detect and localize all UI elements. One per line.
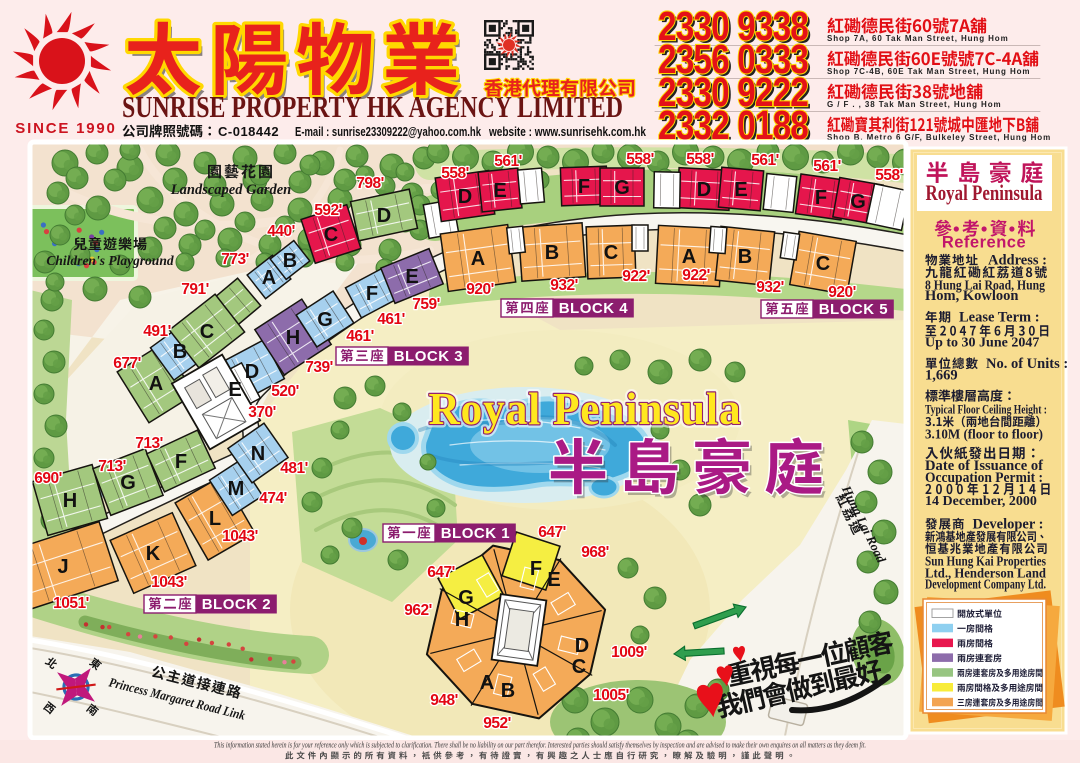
svg-text:K: K <box>146 543 161 565</box>
svg-text:D: D <box>575 635 589 657</box>
svg-text:BLOCK 3: BLOCK 3 <box>394 348 463 365</box>
svg-text:Shop 7C-4B, 60E Tak Man Street: Shop 7C-4B, 60E Tak Man Street, Hung Hom <box>827 67 1030 76</box>
svg-text:D: D <box>697 179 711 201</box>
svg-text:B: B <box>173 341 187 363</box>
svg-text:1,669: 1,669 <box>925 368 958 384</box>
svg-text:Landscaped Garden: Landscaped Garden <box>170 182 291 198</box>
svg-text:474': 474' <box>259 490 287 507</box>
svg-text:Developer :: Developer : <box>973 517 1044 533</box>
svg-text:922': 922' <box>622 268 650 285</box>
svg-text:647': 647' <box>427 564 455 581</box>
svg-text:647': 647' <box>538 524 566 541</box>
svg-text:932': 932' <box>756 279 784 296</box>
svg-text:D: D <box>377 205 391 227</box>
svg-text:G: G <box>458 587 474 609</box>
svg-text:SINCE 1990: SINCE 1990 <box>15 120 116 137</box>
svg-text:A: A <box>480 672 494 694</box>
svg-text:791': 791' <box>181 281 209 298</box>
svg-text:948': 948' <box>430 692 458 709</box>
svg-text:713': 713' <box>98 458 126 475</box>
svg-text:C: C <box>200 321 214 343</box>
svg-text:F: F <box>530 558 542 580</box>
svg-text:461': 461' <box>346 328 374 345</box>
svg-text:440': 440' <box>267 223 295 240</box>
svg-text:G: G <box>850 191 866 213</box>
svg-text:Typical Floor Ceiling Height :: Typical Floor Ceiling Height : <box>925 403 1047 417</box>
svg-text:1005': 1005' <box>593 687 629 704</box>
svg-text:952': 952' <box>483 715 511 732</box>
svg-text:E: E <box>228 379 241 401</box>
svg-text:739': 739' <box>305 359 333 376</box>
svg-text:C: C <box>604 242 618 264</box>
svg-text:F: F <box>366 283 378 305</box>
svg-text:BLOCK 2: BLOCK 2 <box>202 596 271 613</box>
svg-text:BLOCK 1: BLOCK 1 <box>441 525 510 542</box>
svg-text:561': 561' <box>494 153 522 170</box>
svg-text:M: M <box>228 478 245 500</box>
svg-text:922': 922' <box>682 267 710 284</box>
svg-text:BLOCK 4: BLOCK 4 <box>559 300 628 317</box>
svg-text:481': 481' <box>280 460 308 477</box>
svg-text:Development Company Ltd.: Development Company Ltd. <box>925 577 1046 592</box>
svg-text:D: D <box>245 361 259 383</box>
svg-text:3.10M (floor to floor): 3.10M (floor to floor) <box>925 428 1043 443</box>
svg-text:Shop 7A, 60 Tak Man Street, Hu: Shop 7A, 60 Tak Man Street, Hung Hom <box>827 34 1009 43</box>
svg-text:558': 558' <box>686 151 714 168</box>
svg-text:Royal Peninsula: Royal Peninsula <box>429 383 742 434</box>
svg-text:561': 561' <box>813 158 841 175</box>
svg-text:773': 773' <box>221 251 249 268</box>
svg-text:520': 520' <box>271 383 299 400</box>
svg-text:C: C <box>816 253 830 275</box>
svg-text:713': 713' <box>135 435 163 452</box>
svg-text:This information stated herein: This information stated herein is for yo… <box>214 741 866 750</box>
svg-text:G: G <box>317 309 333 331</box>
svg-text:Lease Term :: Lease Term : <box>959 310 1040 326</box>
svg-text:968': 968' <box>581 544 609 561</box>
svg-text:E-mail : sunrise23309222@yahoo: E-mail : sunrise23309222@yahoo.com.hk <box>295 124 482 139</box>
svg-text:F: F <box>175 451 187 473</box>
svg-text:920': 920' <box>828 284 856 301</box>
svg-text:14 December, 2000: 14 December, 2000 <box>925 494 1037 509</box>
svg-text:A: A <box>682 246 696 268</box>
svg-text:690': 690' <box>34 470 62 487</box>
svg-text:website : www.sunrisehk.com.hk: website : www.sunrisehk.com.hk <box>488 124 646 139</box>
svg-text:B: B <box>545 242 559 264</box>
svg-text:Reference: Reference <box>942 234 1026 252</box>
svg-text:H: H <box>286 327 300 349</box>
svg-text:E: E <box>734 179 747 201</box>
svg-text:F: F <box>815 187 827 209</box>
svg-text:E: E <box>493 180 506 202</box>
svg-text:461': 461' <box>377 311 405 328</box>
svg-text:592': 592' <box>314 202 342 219</box>
svg-text:C: C <box>572 656 586 678</box>
svg-text:370': 370' <box>248 404 276 421</box>
svg-text:Hom, Kowloon: Hom, Kowloon <box>925 288 1018 304</box>
svg-text:677': 677' <box>113 355 141 372</box>
svg-text:C-018442: C-018442 <box>218 124 279 139</box>
svg-text:558': 558' <box>875 167 903 184</box>
svg-text:Address :: Address : <box>988 253 1047 269</box>
svg-text:561': 561' <box>751 152 779 169</box>
svg-text:A: A <box>149 373 163 395</box>
svg-text:491': 491' <box>143 323 171 340</box>
svg-text:N: N <box>251 443 265 465</box>
svg-text:558': 558' <box>441 165 469 182</box>
svg-text:G: G <box>614 177 630 199</box>
svg-text:Children's Playground: Children's Playground <box>46 253 173 268</box>
svg-text:D: D <box>458 186 472 208</box>
svg-text:Up to 30 June 2047: Up to 30 June 2047 <box>925 336 1039 351</box>
svg-text:B: B <box>738 246 752 268</box>
svg-text:A: A <box>471 248 485 270</box>
svg-text:J: J <box>57 556 68 578</box>
svg-text:BLOCK 5: BLOCK 5 <box>819 301 888 318</box>
svg-text:B: B <box>283 250 297 272</box>
svg-text:B: B <box>501 680 515 702</box>
svg-text:1009': 1009' <box>611 644 647 661</box>
svg-text:759': 759' <box>412 296 440 313</box>
svg-text:G / F . , 38 Tak Man Street, H: G / F . , 38 Tak Man Street, Hung Hom <box>827 100 1002 109</box>
svg-text:E: E <box>405 266 418 288</box>
svg-text:Occupation Permit :: Occupation Permit : <box>925 470 1043 486</box>
svg-text:920': 920' <box>466 281 494 298</box>
svg-text:558': 558' <box>626 151 654 168</box>
svg-text:798': 798' <box>356 175 384 192</box>
svg-text:No. of Units :: No. of Units : <box>986 356 1068 372</box>
svg-text:G: G <box>120 472 136 494</box>
svg-text:1043': 1043' <box>151 574 187 591</box>
svg-text:L: L <box>209 508 221 530</box>
svg-text:962': 962' <box>404 602 432 619</box>
svg-text:1051': 1051' <box>53 595 89 612</box>
svg-text:H: H <box>63 490 77 512</box>
svg-text:932': 932' <box>550 277 578 294</box>
svg-text:A: A <box>262 267 276 289</box>
svg-text:C: C <box>324 224 338 246</box>
svg-text:H: H <box>455 609 469 631</box>
svg-text:F: F <box>578 176 590 198</box>
svg-text:Royal Peninsula: Royal Peninsula <box>926 180 1043 205</box>
svg-text:E: E <box>547 569 560 591</box>
svg-text:1043': 1043' <box>222 528 258 545</box>
